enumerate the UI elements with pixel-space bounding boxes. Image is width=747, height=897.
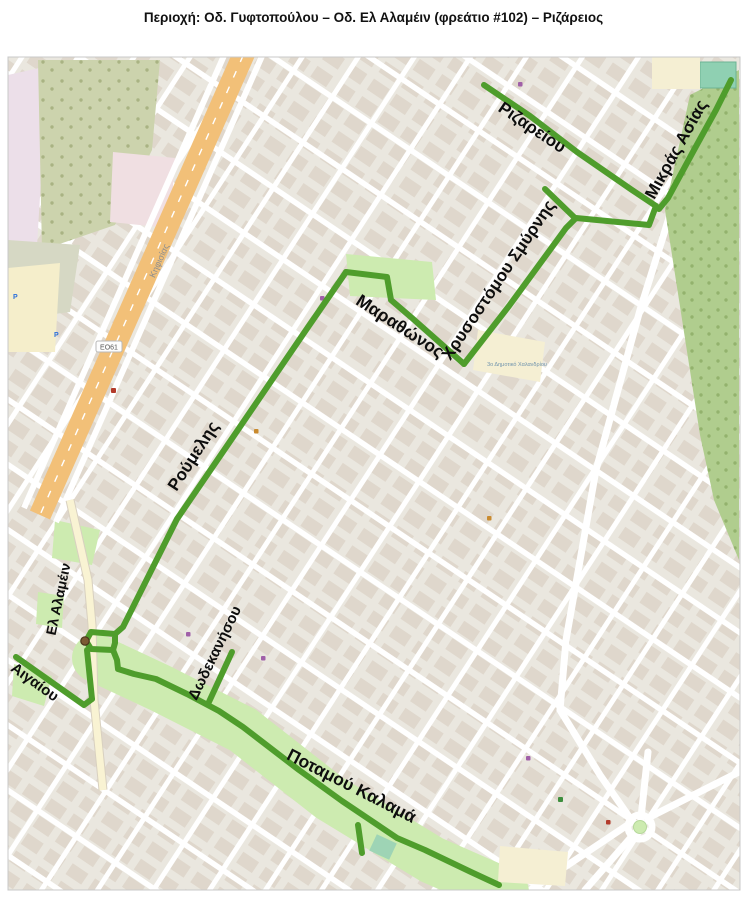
poi-icon-red xyxy=(606,820,611,825)
poi-icon-green xyxy=(558,797,563,802)
parking-icon: P xyxy=(54,332,59,339)
school-block-se xyxy=(498,846,568,886)
school-name-label: 3ο Δημοτικό Χαλανδρίου xyxy=(487,361,547,368)
route-south-spur xyxy=(358,825,362,853)
poi-icon-amber xyxy=(487,516,492,521)
poi-icon xyxy=(518,82,523,87)
poi-icon-amber xyxy=(254,429,259,434)
poi-icon xyxy=(526,756,531,761)
map-canvas: Κηφισίας ΕΟ61 xyxy=(0,0,747,897)
document-page: Περιοχή: Οδ. Γυφτοπούλου – Οδ. Ελ Αλαμέι… xyxy=(0,0,747,897)
parking-icon: P xyxy=(13,294,18,301)
road-ref-badge: ΕΟ61 xyxy=(96,341,122,352)
svg-text:ΕΟ61: ΕΟ61 xyxy=(100,345,118,352)
manhole-102-marker xyxy=(81,637,89,645)
poi-icon-red xyxy=(111,388,116,393)
poi-icon xyxy=(261,656,266,661)
page-title: Περιοχή: Οδ. Γυφτοπούλου – Οδ. Ελ Αλαμέι… xyxy=(0,10,747,25)
retail-yellow-area xyxy=(8,263,60,352)
school-block-ne xyxy=(652,57,700,89)
poi-icon xyxy=(186,632,191,637)
